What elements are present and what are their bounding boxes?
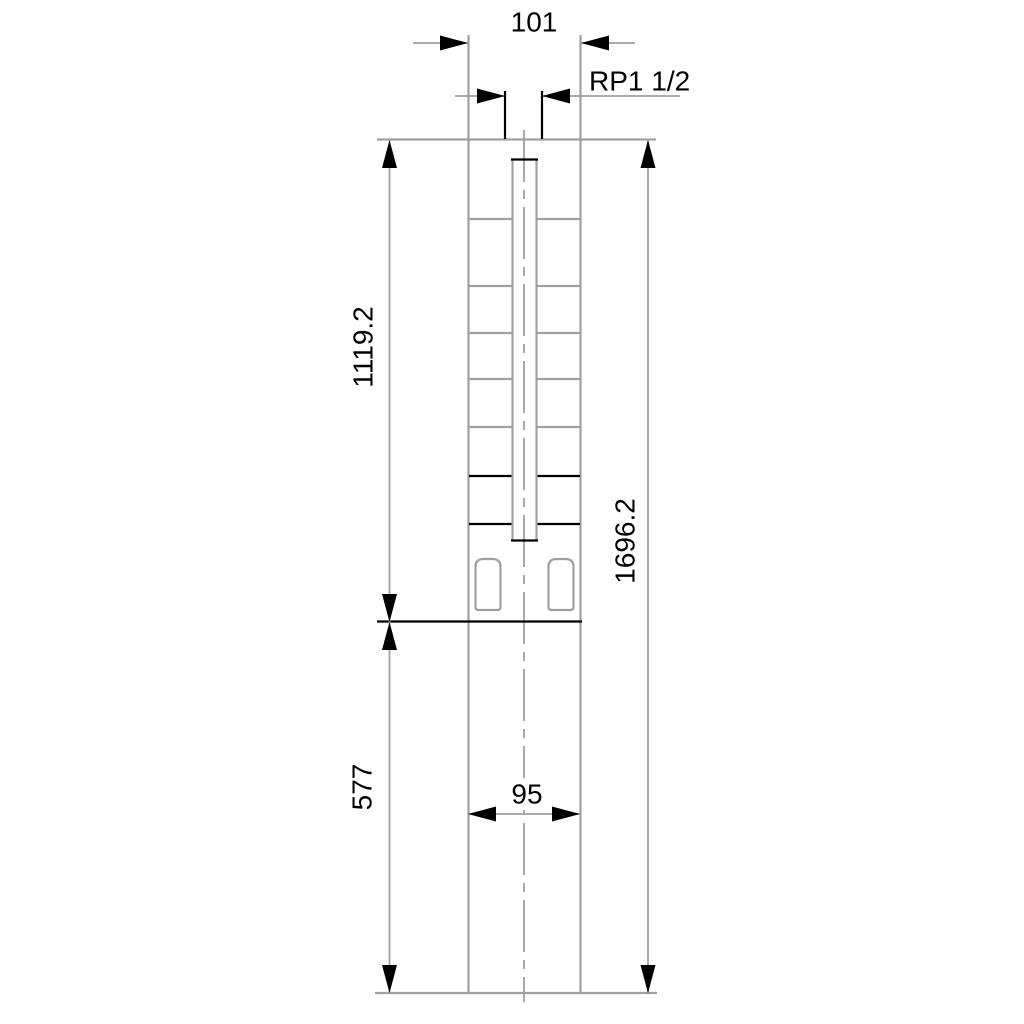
arrowhead-down-icon [382,594,397,622]
arrowhead-up-icon [641,140,656,168]
dim-motor-length-label: 577 [347,764,378,811]
dim-top-width: 101 [413,7,635,51]
arrowhead-right-icon [477,89,505,104]
cable-slot-right [549,559,574,610]
dim-total-length: 1696.2 [610,140,656,993]
arrowhead-down-icon [641,965,656,993]
arrowhead-right-icon [440,36,468,51]
arrowhead-right-icon [552,807,580,822]
cable-slot-left [476,559,501,610]
arrowhead-left-icon [581,36,609,51]
dim-motor-width-label: 95 [511,779,542,810]
arrowhead-left-icon [468,807,496,822]
arrowhead-up-icon [382,622,397,650]
dim-top-width-label: 101 [511,7,558,38]
pump-outline-svg: 101 RP1 1/2 1119.2 577 1696.2 95 [0,0,1024,1024]
dim-total-length-label: 1696.2 [610,498,641,584]
dim-pump-length: 1119.2 [348,140,398,992]
arrowhead-down-icon [382,965,397,993]
dim-pump-length-label: 1119.2 [348,306,379,387]
arrowhead-left-icon [542,89,570,104]
arrowhead-up-icon [382,140,397,168]
dim-thread-label: RP1 1/2 [589,66,690,97]
dim-thread: RP1 1/2 [455,66,690,140]
pump-dimension-drawing: 101 RP1 1/2 1119.2 577 1696.2 95 [0,0,1024,1024]
